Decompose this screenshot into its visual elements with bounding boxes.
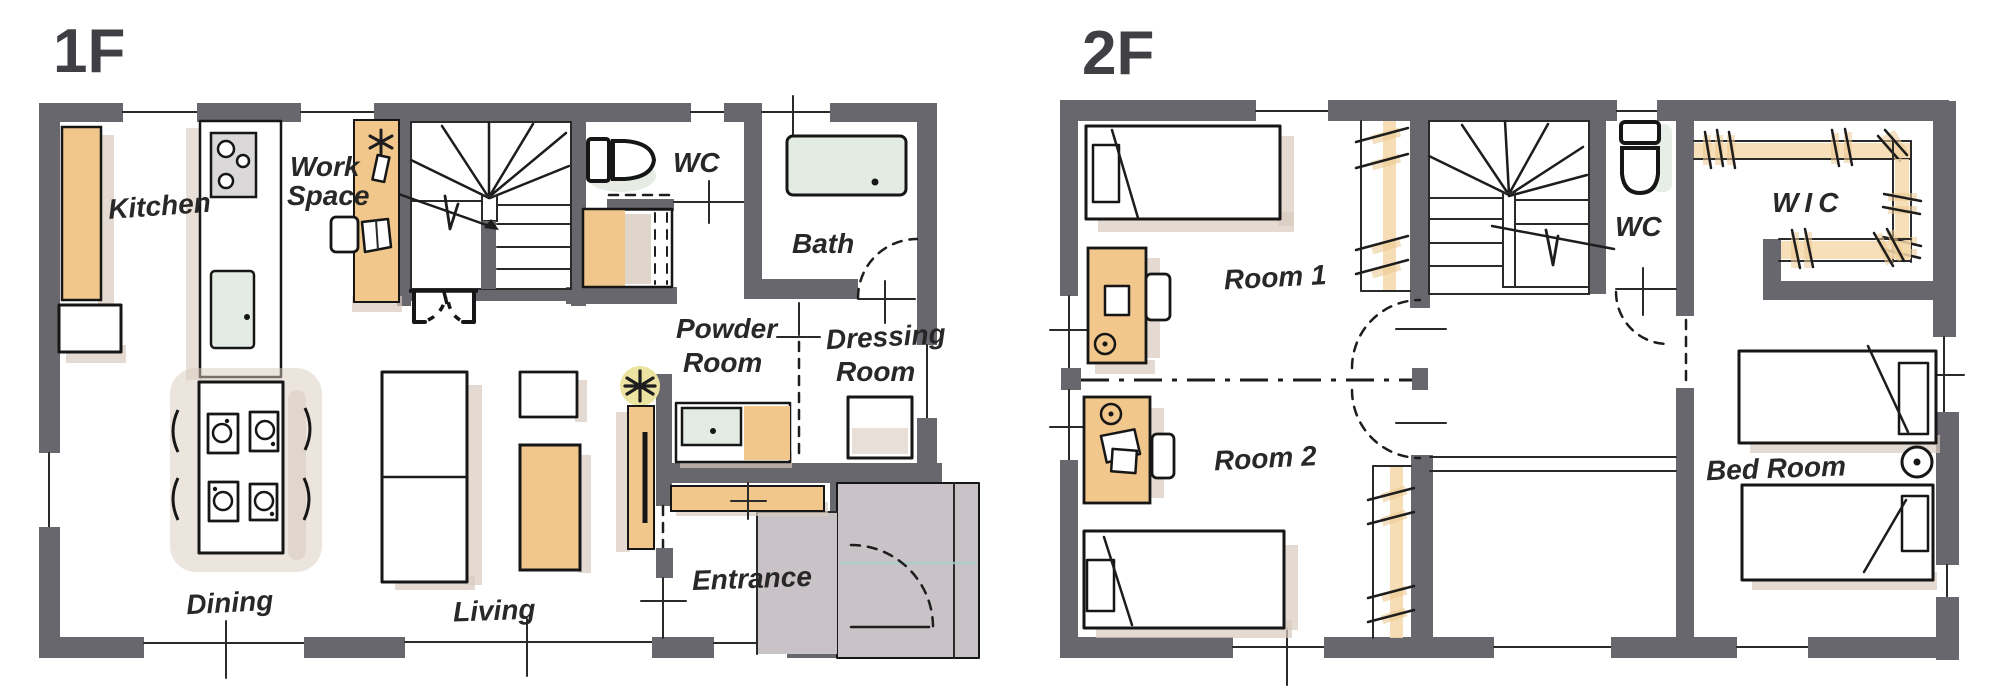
svg-text:2F: 2F [1082,19,1154,88]
svg-text:Living: Living [453,594,536,628]
svg-text:Room 2: Room 2 [1213,440,1318,476]
svg-text:Room 1: Room 1 [1223,259,1327,295]
svg-text:Work: Work [290,151,361,182]
svg-text:Powder: Powder [676,313,779,344]
svg-text:Dining: Dining [185,585,274,621]
svg-text:1F: 1F [53,17,125,86]
svg-text:WC: WC [1615,211,1662,242]
svg-text:Bath: Bath [792,228,854,259]
svg-text:Room: Room [836,356,915,387]
svg-text:Entrance: Entrance [692,561,813,596]
svg-text:WIC: WIC [1772,187,1844,218]
svg-text:WC: WC [673,147,720,178]
svg-text:Room: Room [683,347,762,378]
svg-text:Space: Space [287,180,370,211]
svg-text:Dressing: Dressing [825,318,946,355]
svg-text:Bed Room: Bed Room [1705,450,1846,486]
